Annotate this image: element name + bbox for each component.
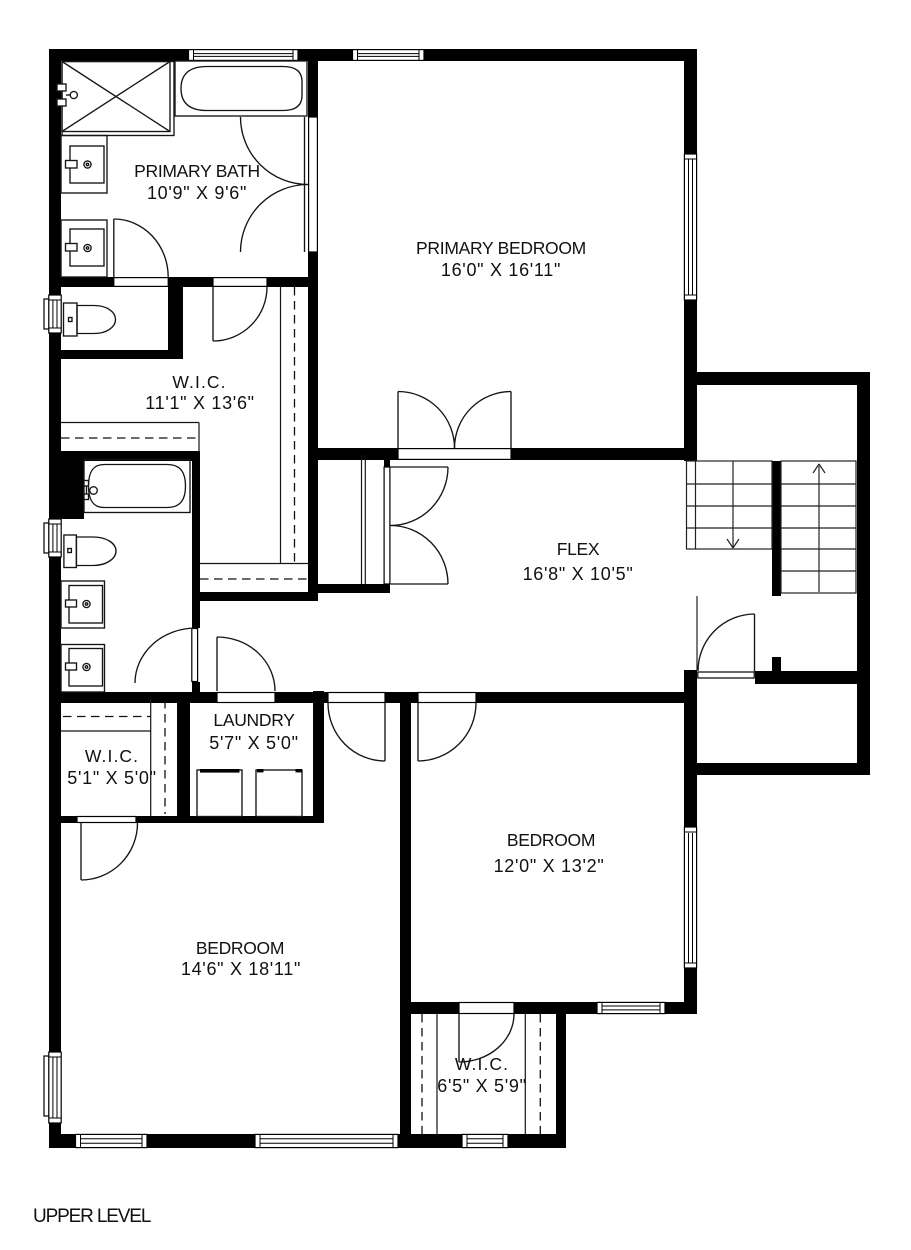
svg-text:BEDROOM: BEDROOM (507, 830, 595, 850)
svg-text:16'0" X 16'11": 16'0" X 16'11" (441, 260, 561, 280)
svg-text:W.I.C.: W.I.C. (455, 1054, 509, 1074)
svg-text:PRIMARY BEDROOM: PRIMARY BEDROOM (416, 238, 586, 258)
svg-text:LAUNDRY: LAUNDRY (213, 710, 295, 730)
svg-text:BEDROOM: BEDROOM (196, 938, 284, 958)
svg-text:14'6" X 18'11": 14'6" X 18'11" (181, 959, 301, 979)
svg-text:10'9" X 9'6": 10'9" X 9'6" (147, 183, 247, 203)
svg-text:6'5" X 5'9": 6'5" X 5'9" (437, 1076, 526, 1096)
svg-text:PRIMARY BATH: PRIMARY BATH (134, 161, 260, 181)
svg-text:W.I.C.: W.I.C. (172, 372, 226, 392)
svg-text:UPPER LEVEL: UPPER LEVEL (33, 1206, 151, 1227)
svg-text:16'8" X 10'5": 16'8" X 10'5" (523, 564, 634, 584)
svg-text:11'1" X 13'6": 11'1" X 13'6" (145, 393, 255, 413)
svg-text:5'7" X 5'0": 5'7" X 5'0" (209, 733, 298, 753)
svg-text:12'0" X 13'2": 12'0" X 13'2" (494, 856, 605, 876)
svg-text:5'1" X 5'0": 5'1" X 5'0" (67, 768, 156, 788)
svg-text:W.I.C.: W.I.C. (85, 746, 139, 766)
svg-text:FLEX: FLEX (557, 539, 600, 559)
